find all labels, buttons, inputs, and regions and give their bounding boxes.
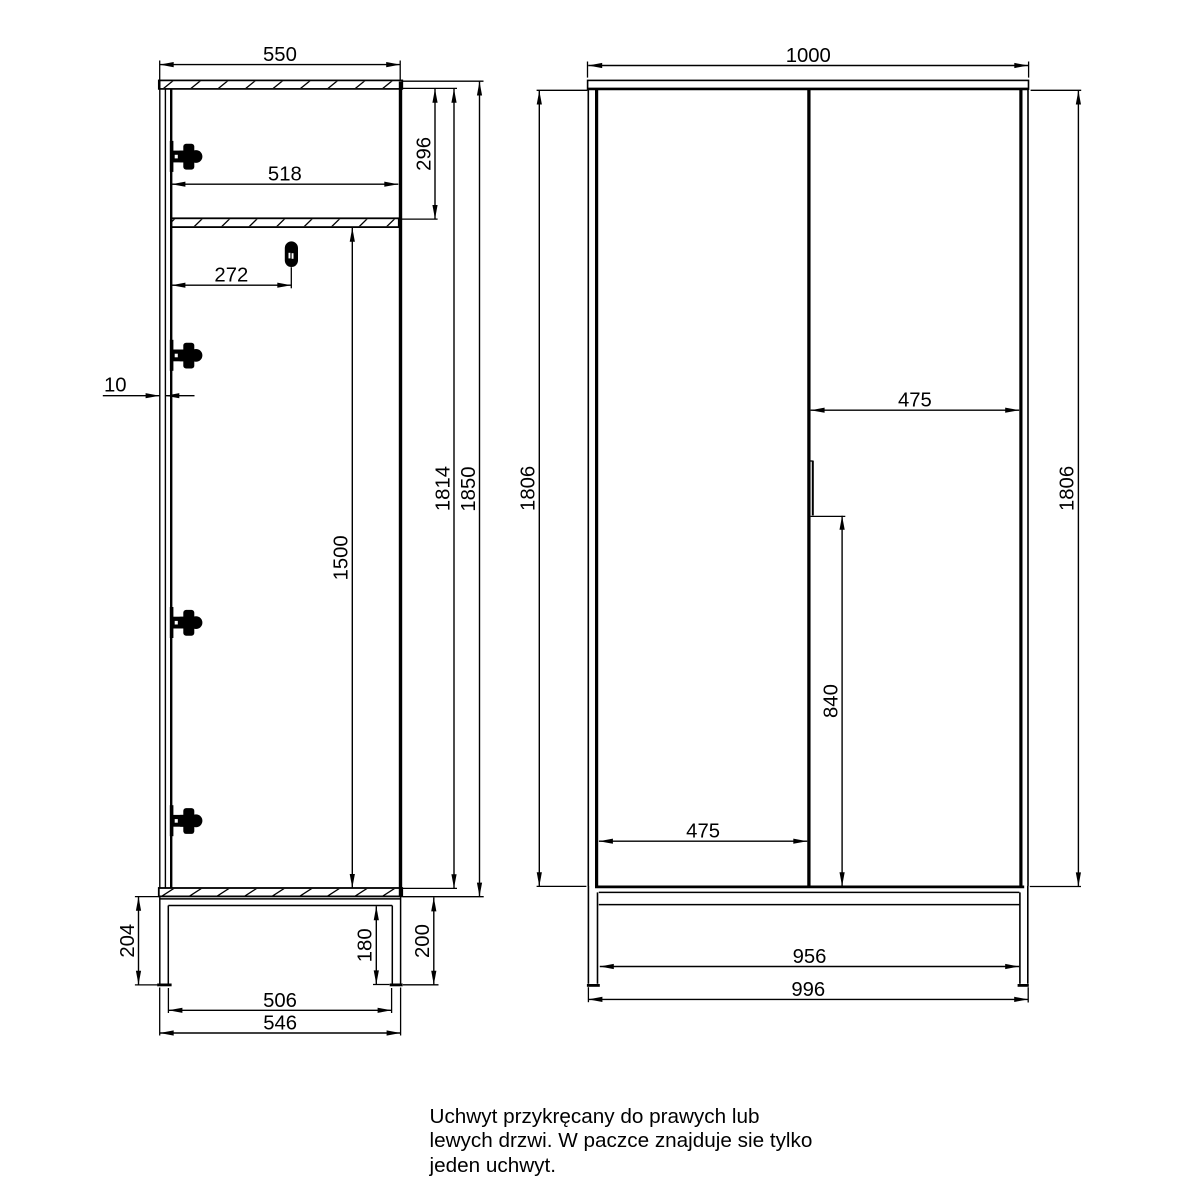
- svg-text:1000: 1000: [786, 45, 831, 67]
- svg-text:204: 204: [117, 924, 139, 958]
- svg-text:996: 996: [791, 979, 825, 1001]
- svg-text:840: 840: [820, 684, 842, 718]
- svg-text:296: 296: [413, 137, 435, 171]
- svg-text:475: 475: [686, 821, 720, 843]
- svg-text:518: 518: [268, 164, 302, 186]
- svg-text:546: 546: [263, 1013, 297, 1035]
- svg-text:1850: 1850: [458, 466, 480, 511]
- svg-text:550: 550: [263, 44, 297, 66]
- svg-text:506: 506: [263, 990, 297, 1012]
- svg-text:272: 272: [214, 265, 248, 287]
- svg-text:1500: 1500: [331, 535, 353, 580]
- svg-text:475: 475: [898, 390, 932, 412]
- svg-text:956: 956: [793, 946, 827, 968]
- svg-text:180: 180: [355, 928, 377, 962]
- svg-text:1806: 1806: [518, 466, 540, 511]
- svg-text:1806: 1806: [1057, 466, 1079, 511]
- svg-text:1814: 1814: [432, 466, 454, 511]
- svg-text:10: 10: [104, 375, 127, 397]
- svg-text:200: 200: [412, 924, 434, 958]
